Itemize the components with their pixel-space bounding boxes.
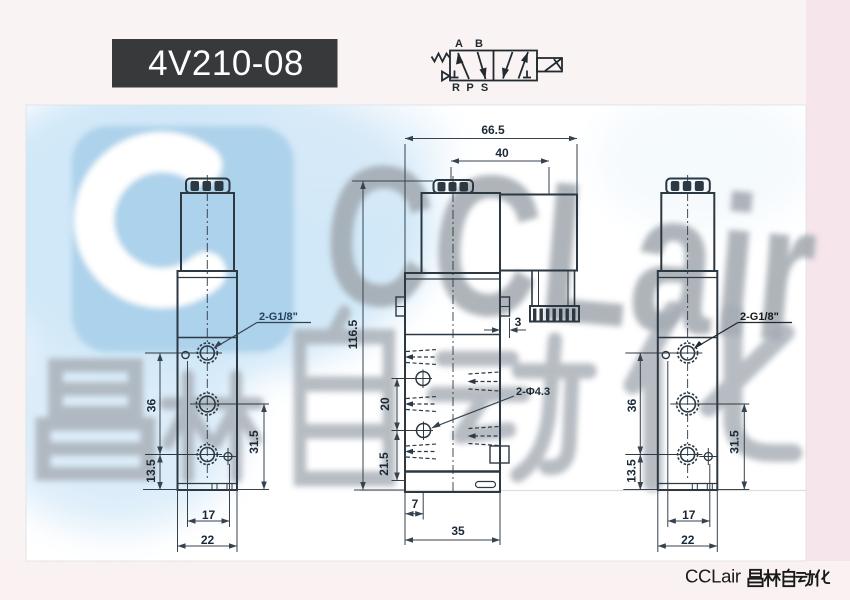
svg-text:B: B <box>475 38 483 50</box>
svg-text:2-G1/8": 2-G1/8" <box>259 311 298 323</box>
svg-text:40: 40 <box>495 146 509 160</box>
svg-text:A: A <box>455 38 463 50</box>
svg-text:17: 17 <box>202 508 216 522</box>
svg-text:R: R <box>452 82 460 94</box>
svg-text:35: 35 <box>451 524 465 538</box>
svg-text:2-Φ4.3: 2-Φ4.3 <box>516 386 550 398</box>
svg-text:66.5: 66.5 <box>481 123 505 137</box>
svg-text:S: S <box>481 82 488 94</box>
svg-text:31.5: 31.5 <box>247 430 261 454</box>
svg-text:3: 3 <box>515 315 522 329</box>
svg-text:36: 36 <box>145 399 159 413</box>
svg-text:P: P <box>466 82 473 94</box>
svg-text:20: 20 <box>378 397 392 411</box>
svg-text:22: 22 <box>201 533 215 547</box>
svg-text:CCLair: CCLair <box>685 566 741 587</box>
svg-text:13.5: 13.5 <box>144 459 158 483</box>
svg-text:7: 7 <box>412 497 419 511</box>
svg-text:116.5: 116.5 <box>346 319 360 349</box>
svg-text:4V210-08: 4V210-08 <box>148 44 304 83</box>
svg-text:2-G1/8": 2-G1/8" <box>740 311 779 323</box>
svg-text:21.5: 21.5 <box>377 452 391 476</box>
